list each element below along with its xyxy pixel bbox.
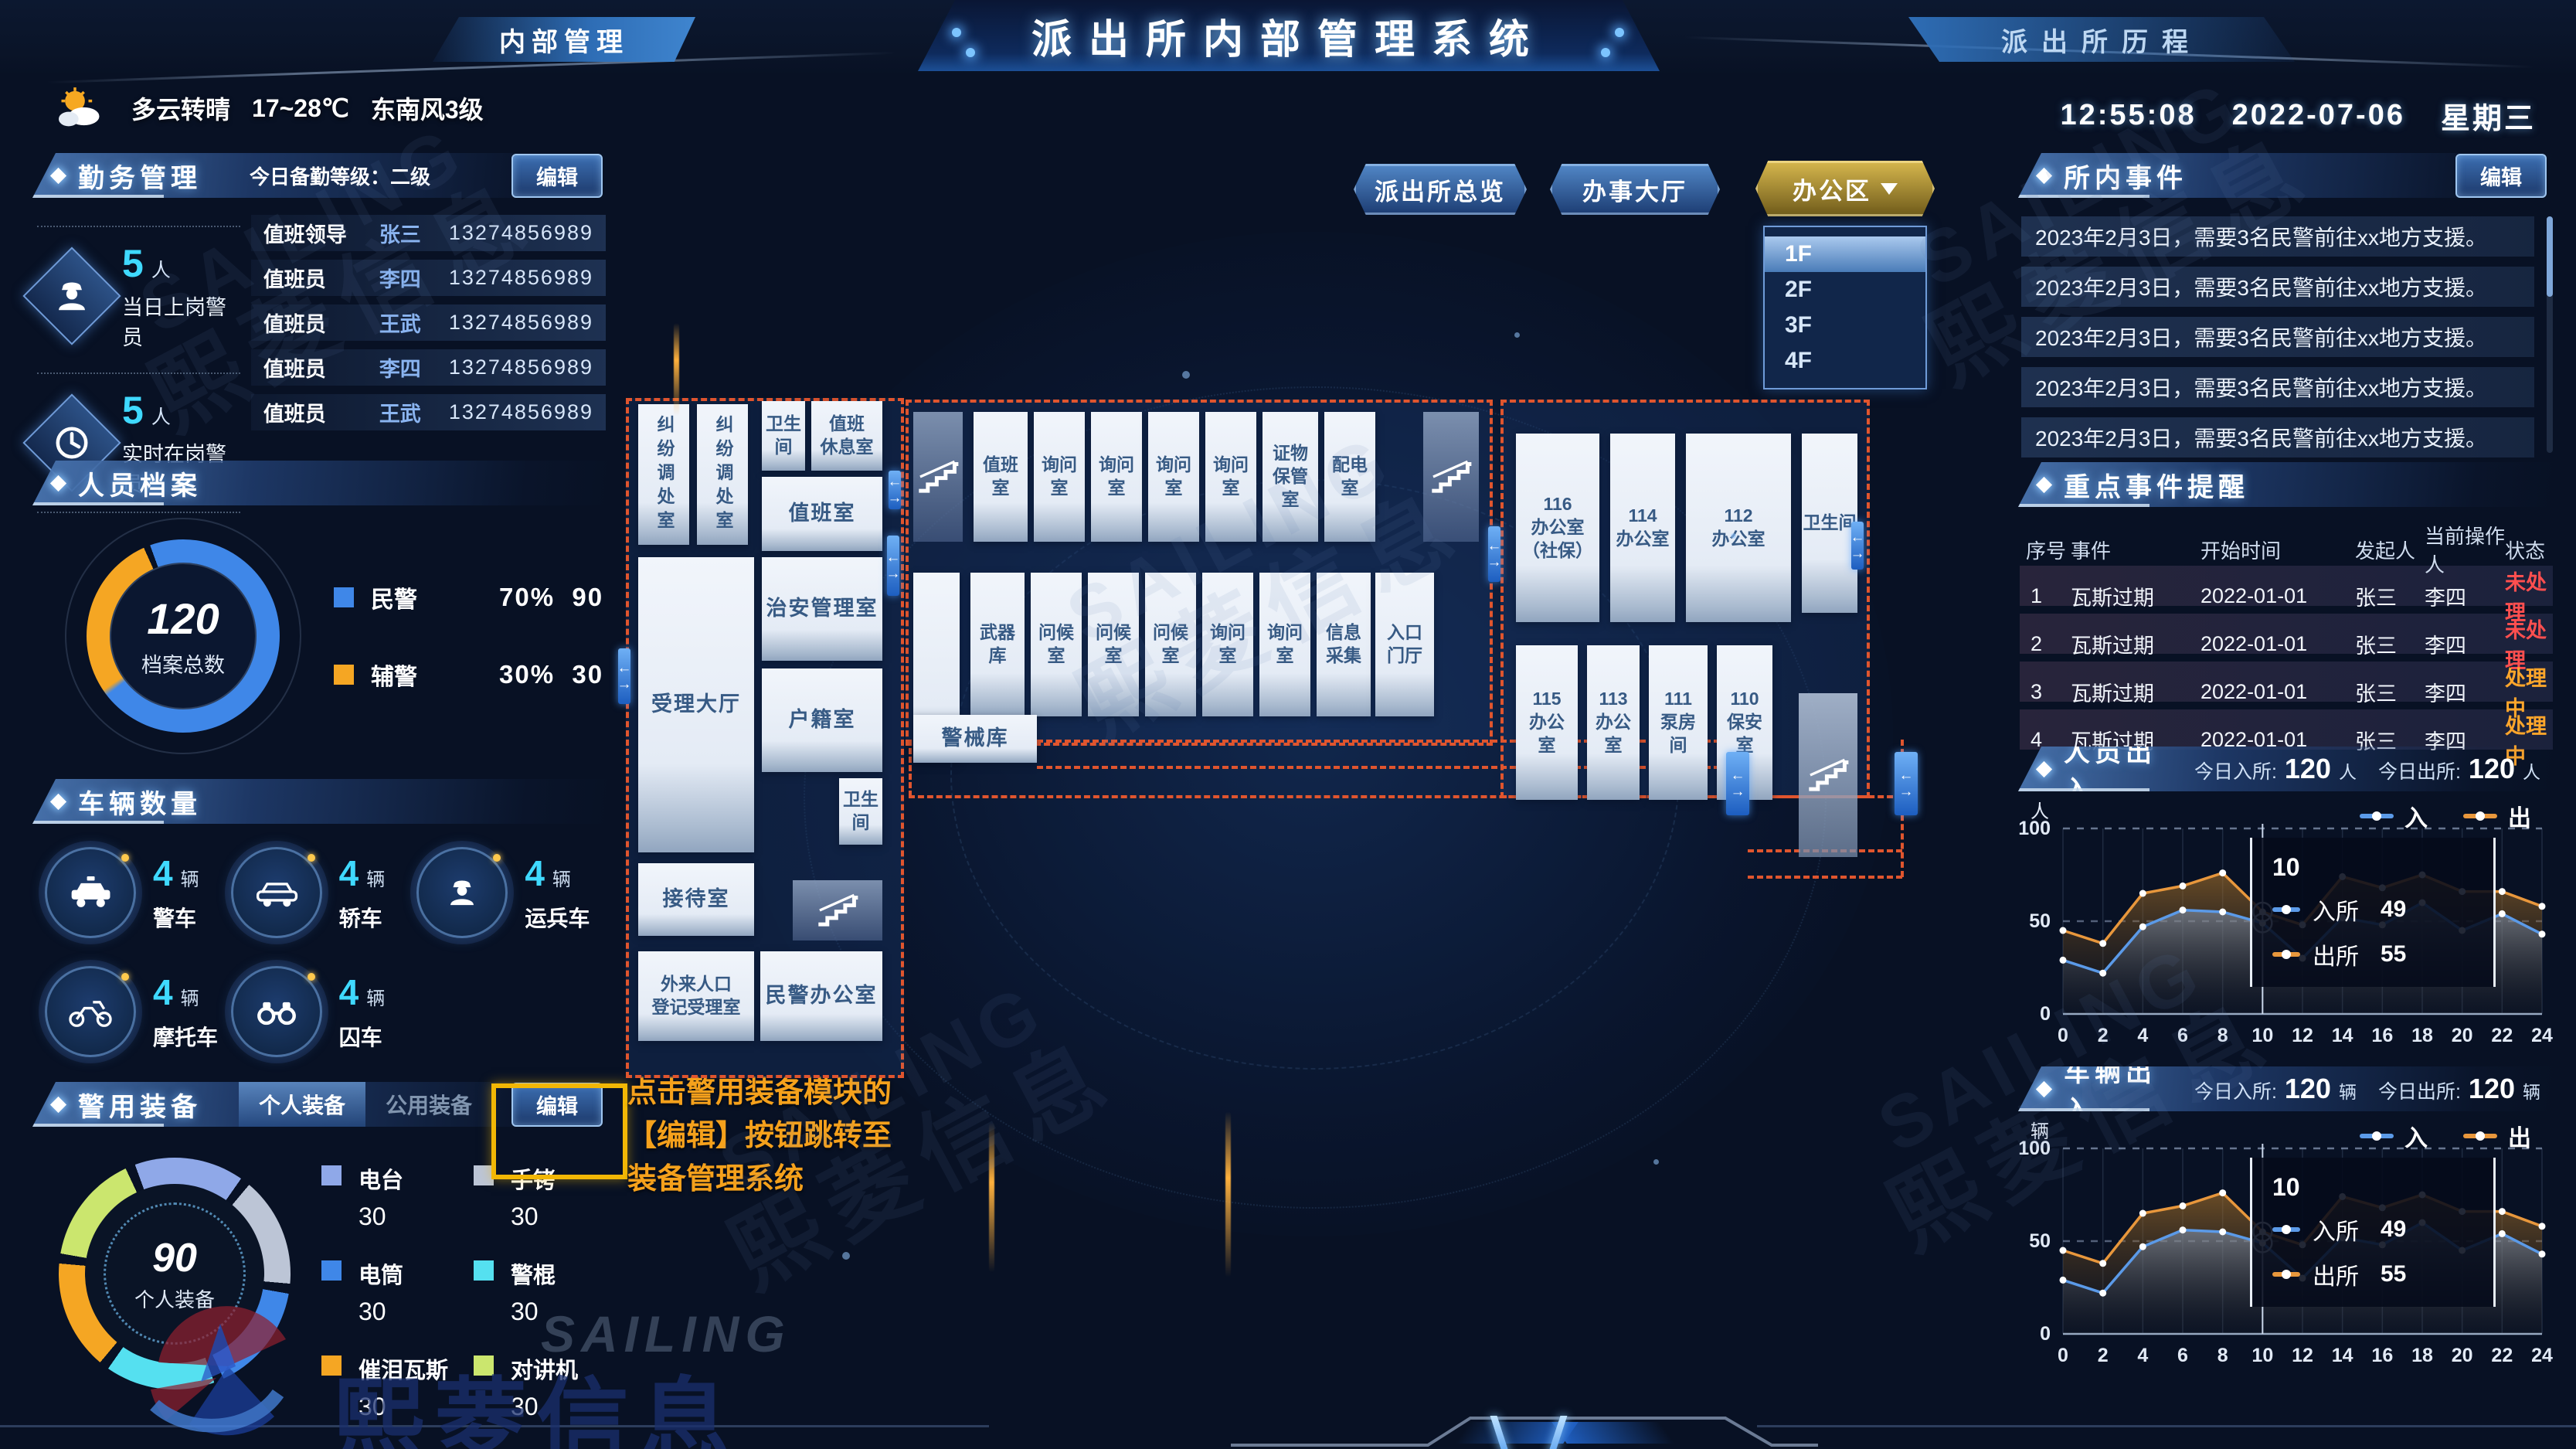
room[interactable]: 户籍室 (762, 668, 882, 772)
legend-item: 民警 70% 90 (334, 580, 603, 614)
app-title-plate: 派出所内部管理系统 (918, 0, 1660, 71)
tooltip-row: 入所49 (2272, 893, 2473, 927)
chart-legend: 入 出 (2360, 1119, 2531, 1153)
personnel-total: 120 (147, 594, 219, 644)
equipment-label: 对讲机 (511, 1352, 603, 1385)
cell-initiator: 张三 (2355, 629, 2425, 659)
door-marker-icon: ←→ (618, 648, 630, 704)
title-dot (966, 48, 975, 57)
weather-condition: 多云转晴 (131, 90, 230, 126)
out-unit: 人 (2523, 757, 2540, 784)
roster-role: 值班员 (263, 263, 379, 293)
equipment-legend-item: 电台 30 (321, 1162, 450, 1231)
legend-out: 出 (2463, 1119, 2531, 1153)
svg-text:8: 8 (2217, 1025, 2228, 1046)
tab-internal-management[interactable]: 内部管理 (433, 17, 695, 62)
svg-text:24: 24 (2531, 1345, 2553, 1366)
svg-text:20: 20 (2452, 1025, 2473, 1046)
legend-swatch (321, 1165, 342, 1185)
room[interactable]: 问候室 (1145, 573, 1196, 716)
equipment-count: 30 (359, 1393, 450, 1421)
reminders-table-body: 1 瓦斯过期 2022-01-01 张三 李四 未处理2 瓦斯过期 2022-0… (2020, 566, 2553, 750)
dashboard-root: 派出所内部管理系统 内部管理 派出所历程 多云转晴 17~28℃ 东南风3级 1… (0, 0, 2576, 1449)
roster-row: 值班员 李四 13274856989 (251, 349, 606, 386)
cell-start: 2022-01-01 (2200, 680, 2355, 704)
cell-no: 3 (2020, 680, 2071, 704)
event-row: 2023年2月3日，需要3名民警前往xx地方支援。 (2021, 417, 2534, 457)
tooltip-out-value: 55 (2381, 1261, 2406, 1287)
roster-role: 值班员 (263, 397, 379, 427)
door-marker-icon: ←→ (889, 471, 901, 509)
vehicle-label: 摩托车 (153, 1021, 218, 1052)
clock-time: 12:55:08 (2060, 99, 2196, 132)
svg-text:2: 2 (2098, 1025, 2109, 1046)
tooltip-out-value: 55 (2381, 941, 2406, 968)
room[interactable]: 问候室 (1088, 573, 1139, 716)
clock-widget: 12:55:08 2022-07-06 星期三 (2060, 94, 2536, 137)
clock-date: 2022-07-06 (2232, 99, 2405, 132)
equipment-donut-chart: 90 个人装备 (59, 1158, 291, 1389)
tooltip-out-marker (2272, 952, 2300, 957)
room[interactable]: 询问室 (1205, 412, 1256, 542)
roster-role: 值班领导 (263, 218, 379, 248)
floorplan: 纠纷调处室纠纷调处室卫生间值班休息室值班室受理大厅治安管理室户籍室卫生间接待室外… (618, 390, 2001, 1101)
svg-text:12: 12 (2292, 1345, 2313, 1366)
legend-out-marker (2463, 814, 2497, 818)
legend-out-label: 出 (2508, 1119, 2531, 1153)
tooltip-x: 10 (2272, 853, 2473, 882)
chevron-down-icon (1881, 183, 1898, 195)
handcuffs-icon (231, 966, 322, 1057)
svg-text:0: 0 (2040, 1323, 2051, 1345)
svg-text:0: 0 (2058, 1345, 2068, 1366)
equipment-legend-item: 催泪瓦斯 30 (321, 1352, 450, 1421)
vehicle-label: 运兵车 (525, 902, 590, 933)
view-button-office-label: 办公区 (1793, 172, 1871, 206)
room[interactable]: 询问室 (1259, 573, 1310, 716)
events-panel-title: 所内事件 (2064, 157, 2187, 195)
corridor-line (909, 740, 912, 797)
room[interactable]: 入口门厅 (1375, 573, 1434, 716)
diamond-icon (50, 167, 66, 183)
edit-button-highlight-box (491, 1083, 627, 1179)
legend-swatch (321, 1260, 342, 1281)
vehicle-unit: 辆 (366, 988, 385, 1009)
tooltip-out-label: 出所 (2313, 937, 2359, 971)
person-flow-chart: 入 出 024681012141618202224050100人 10 入所49… (2018, 794, 2554, 1053)
stairs-icon (913, 412, 963, 542)
vehicle-unit: 辆 (366, 869, 385, 890)
room[interactable]: 接待室 (638, 863, 754, 936)
room[interactable]: 警械库 (913, 715, 1037, 763)
roster-phone: 13274856989 (449, 400, 593, 424)
in-label: 今日入所: (2194, 757, 2277, 784)
vehicle-count: 4 (153, 972, 173, 1012)
room[interactable]: 外来人口登记受理室 (638, 951, 754, 1041)
table-row: 2 瓦斯过期 2022-01-01 张三 李四 未处理 (2020, 614, 2553, 654)
vehicle-flow-stats: 今日入所: 120 辆 今日出所: 120 辆 (2194, 1073, 2554, 1105)
vehicle-card: 4辆 轿车 (231, 847, 417, 938)
legend-label: 民警 (371, 580, 456, 614)
stat-value: 5 (122, 389, 144, 432)
cell-operator: 李四 (2425, 629, 2505, 659)
duty-panel: 勤务管理 今日备勤等级：二级 编辑 5人 当日上岗警员 5人 实时在岗警员 值班… (32, 153, 610, 450)
table-row: 4 瓦斯过期 2022-01-01 张三 李四 处理中 (2020, 709, 2553, 750)
svg-text:14: 14 (2332, 1345, 2353, 1366)
tab-internal-management-label: 内部管理 (499, 21, 629, 59)
room[interactable]: 配电室 (1324, 412, 1375, 542)
vehicle-count: 4 (339, 972, 359, 1012)
legend-swatch (474, 1260, 494, 1281)
door-marker-icon: ←→ (1488, 526, 1500, 582)
vehicle-card: 4辆 囚车 (231, 966, 417, 1057)
door-marker-icon: ←→ (1851, 522, 1864, 570)
duty-panel-header: 勤务管理 今日备勤等级：二级 编辑 (32, 153, 610, 198)
cell-operator: 李四 (2425, 581, 2505, 611)
room[interactable]: 116办公室（社保） (1516, 434, 1599, 622)
weather-temp: 17~28℃ (252, 94, 349, 123)
legend-in-label: 入 (2404, 1119, 2428, 1153)
svg-text:10: 10 (2251, 1025, 2273, 1046)
room[interactable]: 证物保管室 (1263, 412, 1318, 542)
tooltip-in-value: 49 (2381, 1216, 2406, 1243)
legend-out: 出 (2463, 799, 2531, 833)
diamond-icon (2036, 760, 2052, 777)
svg-text:22: 22 (2491, 1025, 2513, 1046)
roster-name: 张三 (379, 218, 449, 248)
glow-wedge (1551, 1422, 1675, 1444)
vehicle-card: 4辆 警车 (45, 847, 231, 938)
equipment-total: 90 (152, 1235, 197, 1281)
legend-in: 入 (2360, 799, 2428, 833)
svg-text:22: 22 (2491, 1345, 2513, 1366)
room[interactable]: 询问室 (1091, 412, 1142, 542)
floor-option-4F[interactable]: 4F (1765, 343, 1925, 379)
equipment-count: 30 (359, 1298, 450, 1326)
weather-widget: 多云转晴 17~28℃ 东南风3级 (51, 87, 484, 130)
reminders-table-header: 序号事件开始时间发起人当前操作人状态 (2020, 521, 2553, 558)
view-button-office[interactable]: 办公区 (1755, 161, 1935, 216)
donut-center: 120 档案总数 (79, 532, 287, 740)
room[interactable]: 受理大厅 (638, 557, 754, 852)
events-list: 2023年2月3日，需要3名民警前往xx地方支援。2023年2月3日，需要3名民… (2018, 198, 2554, 457)
bottom-center-decoration (1231, 1414, 1818, 1449)
equipment-legend-item: 警棍 30 (474, 1257, 603, 1326)
vehicles-panel-header: 车辆数量 (32, 779, 610, 824)
sun-cloud-icon (51, 87, 110, 130)
svg-text:8: 8 (2217, 1345, 2228, 1366)
personnel-panel-header: 人员档案 (32, 461, 610, 505)
vehicle-flow-header: 车辆出入 今日入所: 120 辆 今日出所: 120 辆 (2018, 1066, 2554, 1111)
page-title: 派出所内部管理系统 (1031, 7, 1546, 65)
svg-text:0: 0 (2040, 1003, 2051, 1025)
diamond-icon (2036, 1080, 2052, 1097)
in-value: 120 (2285, 753, 2331, 785)
person-flow-stats: 今日入所: 120 人 今日出所: 120 人 (2194, 753, 2554, 785)
legend-value: 30% 30 (499, 660, 603, 689)
room[interactable]: 武器库 (970, 573, 1025, 716)
tooltip-x: 10 (2272, 1173, 2473, 1202)
event-row: 2023年2月3日，需要3名民警前往xx地方支援。 (2021, 216, 2534, 257)
equipment-count: 30 (511, 1298, 603, 1326)
roster-name: 王武 (379, 308, 449, 338)
door-marker-icon: ←→ (1895, 752, 1918, 815)
tooltip-row: 出所55 (2272, 1257, 2473, 1291)
view-button-hall-label: 办事大厅 (1582, 172, 1687, 207)
legend-in-label: 入 (2404, 799, 2428, 833)
diamond-icon (50, 1096, 66, 1112)
vehicles-panel-title: 车辆数量 (78, 783, 202, 821)
vehicle-label: 警车 (153, 902, 199, 933)
roster-role: 值班员 (263, 308, 379, 338)
personnel-donut-chart: 120 档案总数 (79, 532, 287, 740)
duty-edit-button[interactable]: 编辑 (511, 154, 603, 198)
cell-event: 瓦斯过期 (2071, 677, 2200, 707)
room[interactable]: 值班休息室 (811, 401, 882, 471)
svg-text:18: 18 (2411, 1025, 2433, 1046)
room[interactable]: 信息采集 (1317, 573, 1371, 716)
equipment-count: 30 (511, 1202, 603, 1231)
tab-personal-equipment[interactable]: 个人装备 (239, 1081, 365, 1128)
donut-center: 90 个人装备 (104, 1202, 246, 1345)
room[interactable]: 卫生间 (1802, 434, 1857, 613)
cell-initiator: 张三 (2355, 581, 2425, 611)
legend-swatch (321, 1355, 342, 1376)
tooltip-in-marker (2272, 1227, 2300, 1232)
legend-swatch (474, 1355, 494, 1376)
legend-in-marker (2360, 1134, 2394, 1138)
svg-text:4: 4 (2137, 1025, 2148, 1046)
svg-text:0: 0 (2058, 1025, 2068, 1046)
equipment-label: 警棍 (511, 1257, 603, 1290)
svg-text:6: 6 (2177, 1025, 2188, 1046)
out-value: 120 (2469, 1073, 2515, 1105)
equipment-label: 催泪瓦斯 (359, 1352, 450, 1385)
svg-text:50: 50 (2029, 910, 2051, 932)
legend-swatch (334, 665, 354, 685)
room[interactable]: 纠纷调处室 (697, 404, 748, 545)
in-unit: 人 (2339, 757, 2357, 784)
svg-text:24: 24 (2531, 1025, 2553, 1046)
roster-row: 值班员 李四 13274856989 (251, 260, 606, 296)
svg-text:16: 16 (2371, 1025, 2393, 1046)
room[interactable]: 询问室 (1202, 573, 1253, 716)
reminders-panel-title: 重点事件提醒 (2064, 466, 2249, 504)
equipment-tabs: 个人装备 公用装备 (239, 1081, 492, 1128)
equipment-count: 30 (511, 1393, 603, 1421)
vehicle-unit: 辆 (181, 869, 199, 890)
events-edit-button[interactable]: 编辑 (2455, 154, 2547, 198)
floor-option-3F[interactable]: 3F (1765, 308, 1925, 343)
room[interactable]: 治安管理室 (762, 557, 882, 661)
police-car-icon (45, 847, 136, 938)
tooltip-in-value: 49 (2381, 896, 2406, 923)
vehicle-count: 4 (339, 853, 359, 893)
tooltip-in-marker (2272, 907, 2300, 912)
reminders-panel: 重点事件提醒 序号事件开始时间发起人当前操作人状态 1 瓦斯过期 2022-01… (2018, 462, 2554, 742)
clock-weekday: 星期三 (2441, 94, 2536, 137)
vehicle-card: 4辆 摩托车 (45, 966, 231, 1057)
duty-level: 今日备勤等级：二级 (250, 162, 430, 190)
room[interactable]: 113办公室 (1587, 645, 1640, 800)
view-button-overview[interactable]: 派出所总览 (1354, 164, 1527, 215)
legend-value: 70% 90 (499, 583, 603, 612)
tooltip-out-label: 出所 (2313, 1257, 2359, 1291)
tab-station-history[interactable]: 派出所历程 (1908, 17, 2295, 62)
svg-text:6: 6 (2177, 1345, 2188, 1366)
vehicles-grid: 4辆 警车 4辆 轿车 4辆 运兵车 4辆 摩托车 4辆 囚车 (32, 824, 610, 1057)
title-dot (1601, 48, 1610, 57)
officer-icon (22, 247, 121, 345)
floor-option-2F[interactable]: 2F (1765, 272, 1925, 308)
vehicle-flow-panel: 车辆出入 今日入所: 120 辆 今日出所: 120 辆 入 出 0246810… (2018, 1066, 2554, 1449)
title-dot (1615, 28, 1624, 37)
reminders-table: 序号事件开始时间发起人当前操作人状态 1 瓦斯过期 2022-01-01 张三 … (2018, 507, 2554, 750)
stairs-icon (793, 880, 882, 940)
equipment-legend: 电台 30 手铐 30 电筒 30 警棍 30 催泪瓦斯 30 对讲机 30 (321, 1158, 603, 1421)
vehicle-flow-chart: 入 出 024681012141618202224050100辆 10 入所49… (2018, 1114, 2554, 1373)
tab-station-history-label: 派出所历程 (2001, 21, 2202, 59)
view-button-hall[interactable]: 办事大厅 (1550, 164, 1720, 215)
in-unit: 辆 (2339, 1077, 2357, 1104)
tab-public-equipment[interactable]: 公用装备 (365, 1081, 492, 1128)
troop-carrier-icon (416, 847, 508, 938)
room[interactable]: 民警办公室 (760, 951, 882, 1041)
diamond-icon (50, 474, 66, 491)
roster-row: 值班员 王武 13274856989 (251, 394, 606, 430)
svg-text:14: 14 (2332, 1025, 2353, 1046)
event-row: 2023年2月3日，需要3名民警前往xx地方支援。 (2021, 317, 2534, 357)
room[interactable]: 值班室 (974, 412, 1028, 542)
legend-out-label: 出 (2508, 799, 2531, 833)
cell-start: 2022-01-01 (2200, 584, 2355, 608)
vehicle-unit: 辆 (181, 988, 199, 1009)
room[interactable]: 询问室 (1034, 412, 1085, 542)
personnel-total-label: 档案总数 (141, 648, 225, 679)
stat-value: 5 (122, 242, 144, 285)
personnel-panel: 人员档案 120 档案总数 民警 70% 90 辅警 30% 30 (32, 461, 610, 770)
tooltip-out-marker (2272, 1272, 2300, 1277)
light-streak (989, 1122, 994, 1273)
corridor-line (1748, 876, 1902, 879)
tooltip-row: 出所55 (2272, 937, 2473, 971)
roster-phone: 13274856989 (449, 266, 593, 290)
column-header: 状态 (2505, 536, 2548, 564)
roster-name: 王武 (379, 397, 449, 427)
out-label: 今日出所: (2378, 1077, 2461, 1104)
in-value: 120 (2285, 1073, 2331, 1105)
stat-label: 当日上岗警员 (122, 291, 240, 351)
vehicle-card: 4辆 运兵车 (416, 847, 603, 938)
roster-row: 值班领导 张三 13274856989 (251, 215, 606, 251)
floor-dropdown: 1F2F3F4F (1763, 226, 1927, 389)
stat-unit: 人 (151, 406, 171, 428)
chart-legend: 入 出 (2360, 799, 2531, 833)
view-button-overview-label: 派出所总览 (1375, 172, 1506, 207)
room[interactable]: 115办公室 (1516, 645, 1578, 800)
bottom-line (1757, 1425, 2576, 1427)
light-streak (1225, 1111, 1231, 1277)
person-flow-header: 人员出入 今日入所: 120 人 今日出所: 120 人 (2018, 747, 2554, 791)
events-panel: 所内事件 编辑 2023年2月3日，需要3名民警前往xx地方支援。2023年2月… (2018, 153, 2554, 457)
room[interactable]: 卫生间 (839, 778, 882, 845)
duty-stat: 5人 当日上岗警员 (37, 226, 240, 365)
stat-unit: 人 (151, 260, 171, 281)
stairs-icon (1799, 693, 1857, 857)
vehicles-panel: 车辆数量 4辆 警车 4辆 轿车 4辆 运兵车 4辆 摩托车 4辆 囚车 (32, 779, 610, 1073)
room[interactable]: 值班室 (762, 477, 882, 551)
svg-text:18: 18 (2411, 1345, 2433, 1366)
events-panel-header: 所内事件 编辑 (2018, 153, 2554, 198)
cell-operator: 李四 (2425, 677, 2505, 707)
room[interactable]: 询问室 (1148, 412, 1199, 542)
light-streak (674, 323, 679, 416)
diamond-icon (50, 793, 66, 809)
legend-in-marker (2360, 814, 2394, 818)
equipment-legend-item: 电筒 30 (321, 1257, 450, 1326)
column-header: 当前操作人 (2425, 521, 2505, 578)
chart-tooltip: 10 入所49 出所55 (2250, 838, 2496, 987)
stairs-icon (1423, 412, 1479, 542)
roster-phone: 13274856989 (449, 311, 593, 335)
car-icon (231, 847, 322, 938)
room[interactable]: 114办公室 (1610, 434, 1675, 622)
room[interactable]: 112办公室 (1686, 434, 1791, 622)
equipment-label: 电筒 (359, 1257, 450, 1290)
svg-text:4: 4 (2137, 1345, 2148, 1366)
room[interactable]: 问候室 (1031, 573, 1082, 716)
column-header: 事件 (2071, 536, 2200, 564)
svg-text:辆: 辆 (2031, 1121, 2049, 1142)
duty-panel-title: 勤务管理 (78, 157, 202, 195)
events-scrollbar[interactable] (2547, 216, 2553, 453)
roster-name: 李四 (379, 263, 449, 293)
legend-in: 入 (2360, 1119, 2428, 1153)
roster-name: 李四 (379, 352, 449, 383)
legend-out-marker (2463, 1134, 2497, 1138)
personnel-legend: 民警 70% 90 辅警 30% 30 (334, 580, 603, 692)
out-label: 今日出所: (2378, 757, 2461, 784)
table-row: 3 瓦斯过期 2022-01-01 张三 李四 处理中 (2020, 662, 2553, 702)
room[interactable]: 卫生间 (762, 401, 805, 471)
title-dot (952, 28, 961, 37)
bottom-line (0, 1425, 989, 1427)
roster-row: 值班员 王武 13274856989 (251, 304, 606, 341)
cell-no: 2 (2020, 632, 2071, 656)
weather-wind: 东南风3级 (371, 90, 484, 126)
legend-label: 辅警 (371, 658, 456, 692)
room[interactable]: 111泵房间 (1649, 645, 1708, 800)
equipment-panel-title: 警用装备 (78, 1086, 202, 1124)
personnel-body: 120 档案总数 民警 70% 90 辅警 30% 30 (32, 505, 610, 740)
chart-tooltip: 10 入所49 出所55 (2250, 1158, 2496, 1307)
svg-text:人: 人 (2031, 801, 2049, 822)
reminders-panel-header: 重点事件提醒 (2018, 462, 2554, 507)
equipment-total-label: 个人装备 (134, 1284, 215, 1313)
svg-text:2: 2 (2098, 1345, 2109, 1366)
roster-phone: 13274856989 (449, 355, 593, 379)
diamond-icon (2036, 476, 2052, 492)
room[interactable]: 纠纷调处室 (638, 404, 689, 545)
vehicle-label: 轿车 (339, 902, 386, 933)
door-marker-icon: ←→ (887, 536, 899, 596)
vehicle-label: 囚车 (339, 1021, 386, 1052)
column-header: 序号 (2020, 536, 2071, 564)
vehicle-count: 4 (153, 853, 173, 893)
cell-initiator: 张三 (2355, 677, 2425, 707)
in-label: 今日入所: (2194, 1077, 2277, 1104)
floor-option-1F[interactable]: 1F (1765, 236, 1925, 272)
